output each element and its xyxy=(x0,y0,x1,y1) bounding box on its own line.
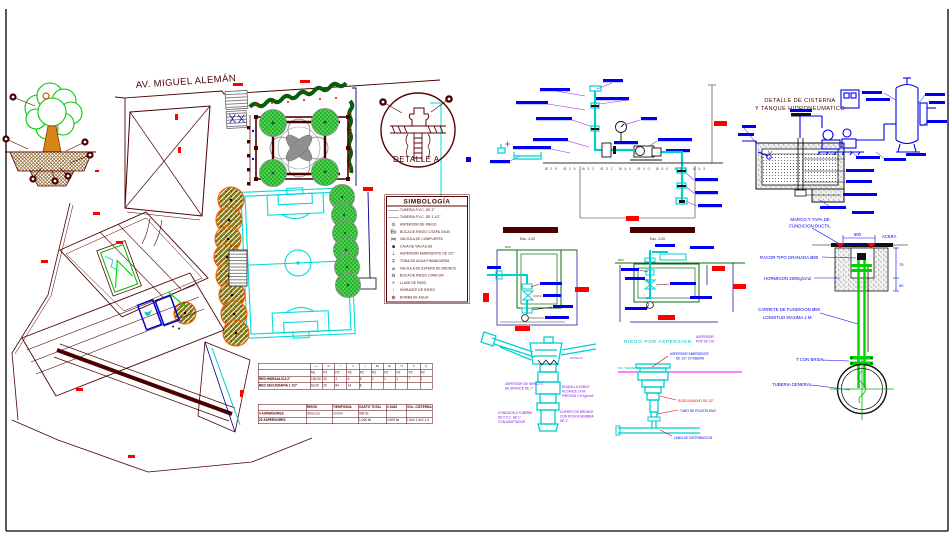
plaza xyxy=(247,83,352,187)
building-x-roof xyxy=(125,106,210,220)
legend-item: ——TUBERIA P.V.C. DE 2" xyxy=(387,207,467,214)
popup-tag: ASPERSOR xyxy=(696,335,714,339)
olive-tree-row xyxy=(174,187,249,346)
drawing-sheet: AV. MIGUEL ALEMÁN xyxy=(0,0,951,537)
quantities-table: — ⊙ ⌐ □ ⊥ ⋈ ⊞ ⊓ ∓ ∥ MLPZ PZPZ PZPZ PZPZ … xyxy=(258,363,432,390)
popup-sprinkler-icon: ⊥ xyxy=(387,251,400,257)
cistern-detail: DETALLE DE CISTERNA Y TANQUE HIDRONEUMAT… xyxy=(738,78,947,214)
garden-bed xyxy=(97,241,142,296)
svg-text:CUERPO DE BRONCE: CUERPO DE BRONCE xyxy=(560,410,593,414)
svg-text:ALCANCE 14 M.: ALCANCE 14 M. xyxy=(562,390,586,394)
green-tree-row xyxy=(330,185,361,298)
carrete-label: LONGITUD MAXIMA 1 M. xyxy=(763,315,813,320)
racor-label: RACOR TIPO GRANADA Ø80 xyxy=(760,255,819,260)
svg-text:ASPERSOR DE IMPACTO: ASPERSOR DE IMPACTO xyxy=(505,382,544,386)
dia-label: Ø50 xyxy=(618,258,624,262)
sprinkler-circle-icon: ⊙ xyxy=(387,222,400,228)
legend-item: ⊖BOCA DE RIEGO C/RACOR xyxy=(387,272,467,279)
gate-valve-icon: ⋈ xyxy=(387,237,400,243)
legend-item: ⊙ASPERSOR DE RIEGO xyxy=(387,221,467,228)
hydrant-label: FUNDICION DUCTIL xyxy=(789,224,831,229)
impact-sprinkler-detail: ASPERSOR DE IMPACTO DE BRONCE DE 1" CONE… xyxy=(481,332,596,431)
legend-simbologia: SIMBOLOGÍA ——TUBERIA P.V.C. DE 2" ——TUBE… xyxy=(386,196,468,302)
legend-item: ×LLAVE DE PASO xyxy=(387,279,467,286)
section-b-caption: Esc. 1:20 xyxy=(650,237,665,241)
legend-item: ■CAJA DE VALVULAS xyxy=(387,243,467,250)
popup-sprinkler-detail: RIEGO POR ASPERSION ASPERSOR POP-UP 1/2"… xyxy=(616,335,742,440)
popup-title: RIEGO POR ASPERSION xyxy=(624,339,692,345)
valve-box-section-b: Esc. 1:20 Ø50 xyxy=(615,227,746,322)
hydraulic-schematic: Ø25 Ø25 Ø32 Ø32 Ø40 Ø40 Ø50 Ø50 Ø63 xyxy=(490,79,727,221)
cistern-title-1: DETALLE DE CISTERNA xyxy=(764,98,835,104)
valve-box-section-a: Esc. 1:20 Ø50 xyxy=(483,227,589,331)
svg-text:DE P.V.C. DE 1": DE P.V.C. DE 1" xyxy=(498,416,521,420)
svg-text:CON ADAPTADOR: CON ADAPTADOR xyxy=(498,420,526,424)
north-marker xyxy=(466,157,471,162)
legend-item: ⋈VALVULA DE COMPUERTA xyxy=(387,236,467,243)
hose-tap-icon: ∓ xyxy=(387,258,400,264)
entrance-stairs xyxy=(225,90,249,128)
street-label: AV. MIGUEL ALEMÁN xyxy=(135,73,236,91)
equipment xyxy=(602,122,662,161)
legend-item: ∓TOMA DE AGUA P/MANGUERA xyxy=(387,258,467,265)
svg-text:DE BRONCE DE 1": DE BRONCE DE 1" xyxy=(505,387,533,391)
ball-valve-icon: ⌀ xyxy=(387,266,400,272)
svg-text:PRESION 2.5 Kg/cm2: PRESION 2.5 Kg/cm2 xyxy=(562,394,594,398)
popup-label: TUBO DE POLIETILENO xyxy=(680,409,716,413)
pipe-2in-line-icon: —— xyxy=(387,207,400,213)
impact-labels: ASPERSOR DE IMPACTO DE BRONCE DE 1" CONE… xyxy=(498,356,595,424)
water-pump-icon: ⊗ xyxy=(387,295,400,301)
stair-structure xyxy=(229,250,247,286)
svg-text:BOQUILLA DOBLE: BOQUILLA DOBLE xyxy=(562,385,589,389)
popup-label: ROSCA MACHO DE 1/2" xyxy=(678,399,714,403)
svg-text:DE 1": DE 1" xyxy=(560,419,568,423)
legend-title: SIMBOLOGÍA xyxy=(387,197,467,207)
table-row: RED SECUNDARIA 1 1/2" 63.0020 8414 8 xyxy=(258,383,432,390)
section-a-title-bar xyxy=(503,227,558,233)
svg-text:GATILLO: GATILLO xyxy=(570,356,583,360)
cad-canvas: AV. MIGUEL ALEMÁN xyxy=(0,0,951,537)
popup-label: LINEA DE DISTRIBUCION xyxy=(674,436,713,440)
section-a-caption: Esc. 1:20 xyxy=(520,237,535,241)
svg-text:CON ROSCA HEMBRA: CON ROSCA HEMBRA xyxy=(560,415,595,419)
carrete-label: CARRETE DE FUNDICION Ø80 xyxy=(758,307,821,312)
pipe-sizes: Ø25 Ø25 Ø32 Ø32 Ø40 Ø40 Ø50 Ø50 Ø63 xyxy=(545,167,705,171)
consumption-table: RIEGO TIEMPO/DIA GASTO TOTAL # DIAS VOL.… xyxy=(258,404,433,424)
legend-item: ⌀VALVULA DE ESFERA DE BRONCE xyxy=(387,265,467,272)
dim-50: 50 xyxy=(899,283,904,288)
legend-item: ——TUBERIA P.V.C. DE 1 1/2" xyxy=(387,214,467,221)
svg-text:CONEXION A TUBERIA: CONEXION A TUBERIA xyxy=(498,411,533,415)
legend-item: ⊥ASPERSOR EMERGENTE DE 1/2" xyxy=(387,250,467,257)
hydrant-detail: MARCO Y TAPA DE FUNDICION DUCTIL 600 ACE… xyxy=(758,217,908,420)
legend-item: ⊗BOMBA DE AGUA xyxy=(387,294,467,301)
pipe-15in-line-icon: —— xyxy=(387,215,400,221)
hormigon-label: HORMIGON 200Kg/cm2 xyxy=(764,276,812,281)
legend-item: ↑HIDRANTE DE RIEGO xyxy=(387,287,467,294)
popup-tag: POP-UP 1/2" xyxy=(696,340,715,344)
dim-75: 75 xyxy=(899,262,904,267)
legend-item: BoBOCA DE RIEGO C/TAPA 30x30 xyxy=(387,228,467,235)
boca-racor-icon: ⊖ xyxy=(387,273,400,279)
garland-top xyxy=(250,83,346,107)
valve-box-icon: ■ xyxy=(387,244,400,250)
stop-cock-icon: × xyxy=(387,280,400,286)
table-row: 20 ASPERSORES 1,000 lts 2,500 lts 1.5x2 … xyxy=(258,417,432,424)
tuberia-label: TUBERIA GENERAL xyxy=(772,382,813,387)
boca-riego-icon: Bo xyxy=(387,229,400,235)
dia-label: Ø50 xyxy=(505,245,511,249)
detail-a: DETALLE A xyxy=(379,93,455,167)
soil-mound xyxy=(10,152,92,171)
tree-planting-detail xyxy=(2,83,99,186)
detail-a-label: DETALLE A xyxy=(393,155,440,164)
dim-600: 600 xyxy=(854,232,862,237)
popup-label: DE 1/2" C/TOBERA xyxy=(676,357,705,361)
section-b-title-bar xyxy=(630,227,695,233)
hydrant-label: MARCO Y TAPA DE xyxy=(790,217,829,222)
hydrant-icon: ↑ xyxy=(387,288,400,294)
popup-label: ASPERSOR EMERGENTE xyxy=(670,352,709,356)
acera-label: ACERA xyxy=(882,234,897,239)
tbrida-label: T CON BRIDA xyxy=(796,357,824,362)
